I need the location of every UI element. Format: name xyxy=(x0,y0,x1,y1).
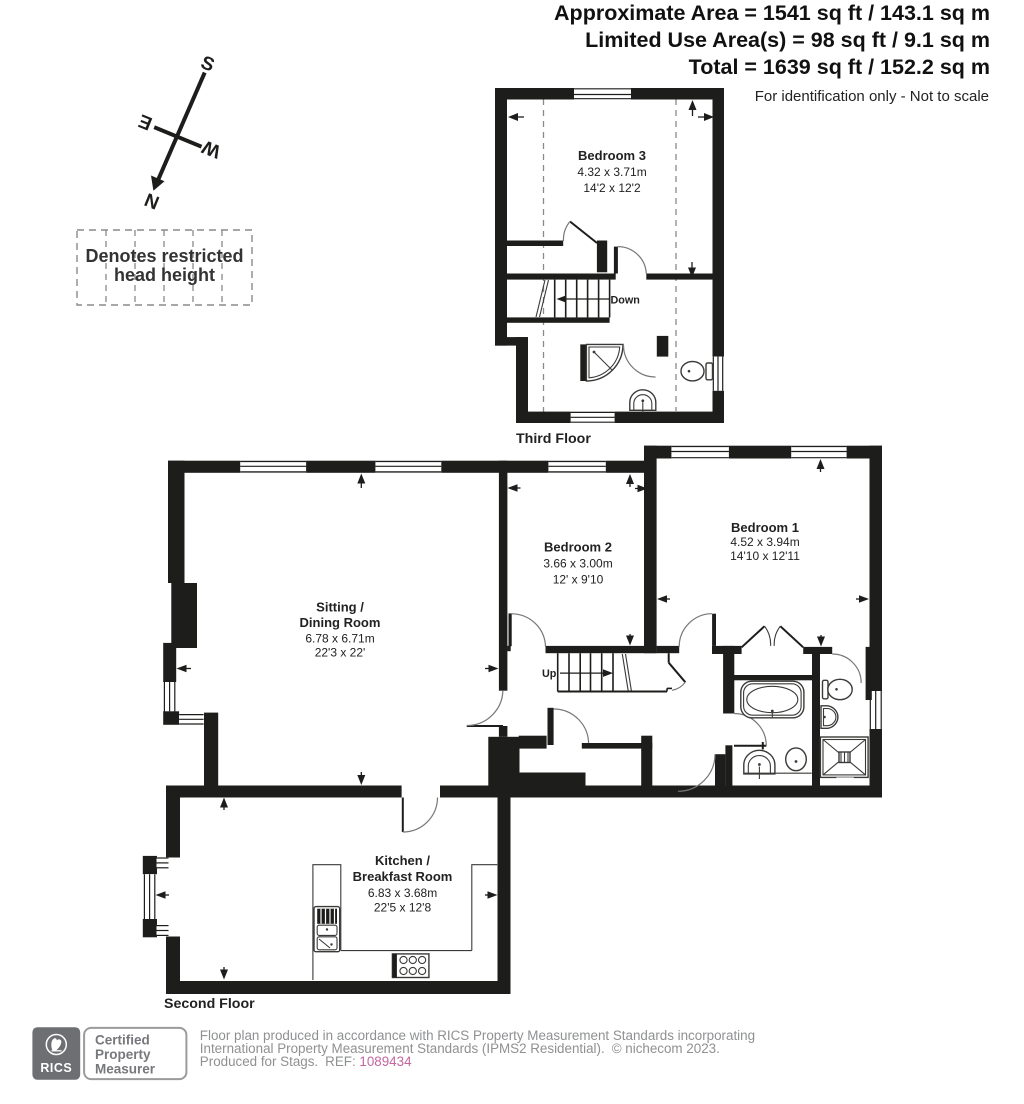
svg-text:Up: Up xyxy=(542,668,557,680)
svg-text:Sitting /: Sitting / xyxy=(316,600,364,615)
svg-text:Down: Down xyxy=(611,295,640,307)
svg-text:RICS: RICS xyxy=(40,1061,72,1075)
svg-text:22'3 x 22': 22'3 x 22' xyxy=(315,646,366,660)
svg-text:Bedroom 2: Bedroom 2 xyxy=(544,540,612,555)
svg-text:head height: head height xyxy=(114,265,215,285)
svg-text:22'5 x 12'8: 22'5 x 12'8 xyxy=(374,901,432,915)
svg-text:Third Floor: Third Floor xyxy=(516,431,591,447)
svg-text:Breakfast Room: Breakfast Room xyxy=(353,869,453,884)
svg-text:6.83 x 3.68m: 6.83 x 3.68m xyxy=(368,886,437,900)
svg-text:Kitchen /: Kitchen / xyxy=(375,853,430,868)
svg-text:Measurer: Measurer xyxy=(95,1062,156,1077)
svg-text:3.66 x 3.00m: 3.66 x 3.00m xyxy=(543,557,612,571)
svg-text:Dining Room: Dining Room xyxy=(300,615,381,630)
svg-text:4.52 x 3.94m: 4.52 x 3.94m xyxy=(730,535,799,549)
svg-text:Bedroom 1: Bedroom 1 xyxy=(731,520,799,535)
svg-text:Property: Property xyxy=(95,1047,151,1062)
svg-text:12' x 9'10: 12' x 9'10 xyxy=(553,573,604,587)
svg-text:14'10 x 12'11: 14'10 x 12'11 xyxy=(730,549,800,563)
svg-text:Second Floor: Second Floor xyxy=(164,996,255,1012)
svg-text:6.78 x 6.71m: 6.78 x 6.71m xyxy=(305,632,374,646)
svg-text:For identification only - Not: For identification only - Not to scale xyxy=(755,88,989,105)
svg-text:Limited Use Area(s) = 98 sq ft: Limited Use Area(s) = 98 sq ft / 9.1 sq … xyxy=(585,28,990,52)
svg-text:Approximate Area = 1541 sq ft: Approximate Area = 1541 sq ft / 143.1 sq… xyxy=(554,1,990,25)
svg-text:Denotes restricted: Denotes restricted xyxy=(85,246,243,266)
svg-text:4.32 x 3.71m: 4.32 x 3.71m xyxy=(577,165,646,179)
svg-text:Bedroom 3: Bedroom 3 xyxy=(578,148,646,163)
svg-text:14'2 x 12'2: 14'2 x 12'2 xyxy=(583,181,641,195)
svg-text:Produced for Stags.REF: 108943: Produced for Stags.REF: 1089434 xyxy=(200,1054,412,1069)
svg-text:Certified: Certified xyxy=(95,1033,150,1048)
svg-text:Total = 1639 sq ft / 152.2 sq: Total = 1639 sq ft / 152.2 sq m xyxy=(689,55,990,79)
